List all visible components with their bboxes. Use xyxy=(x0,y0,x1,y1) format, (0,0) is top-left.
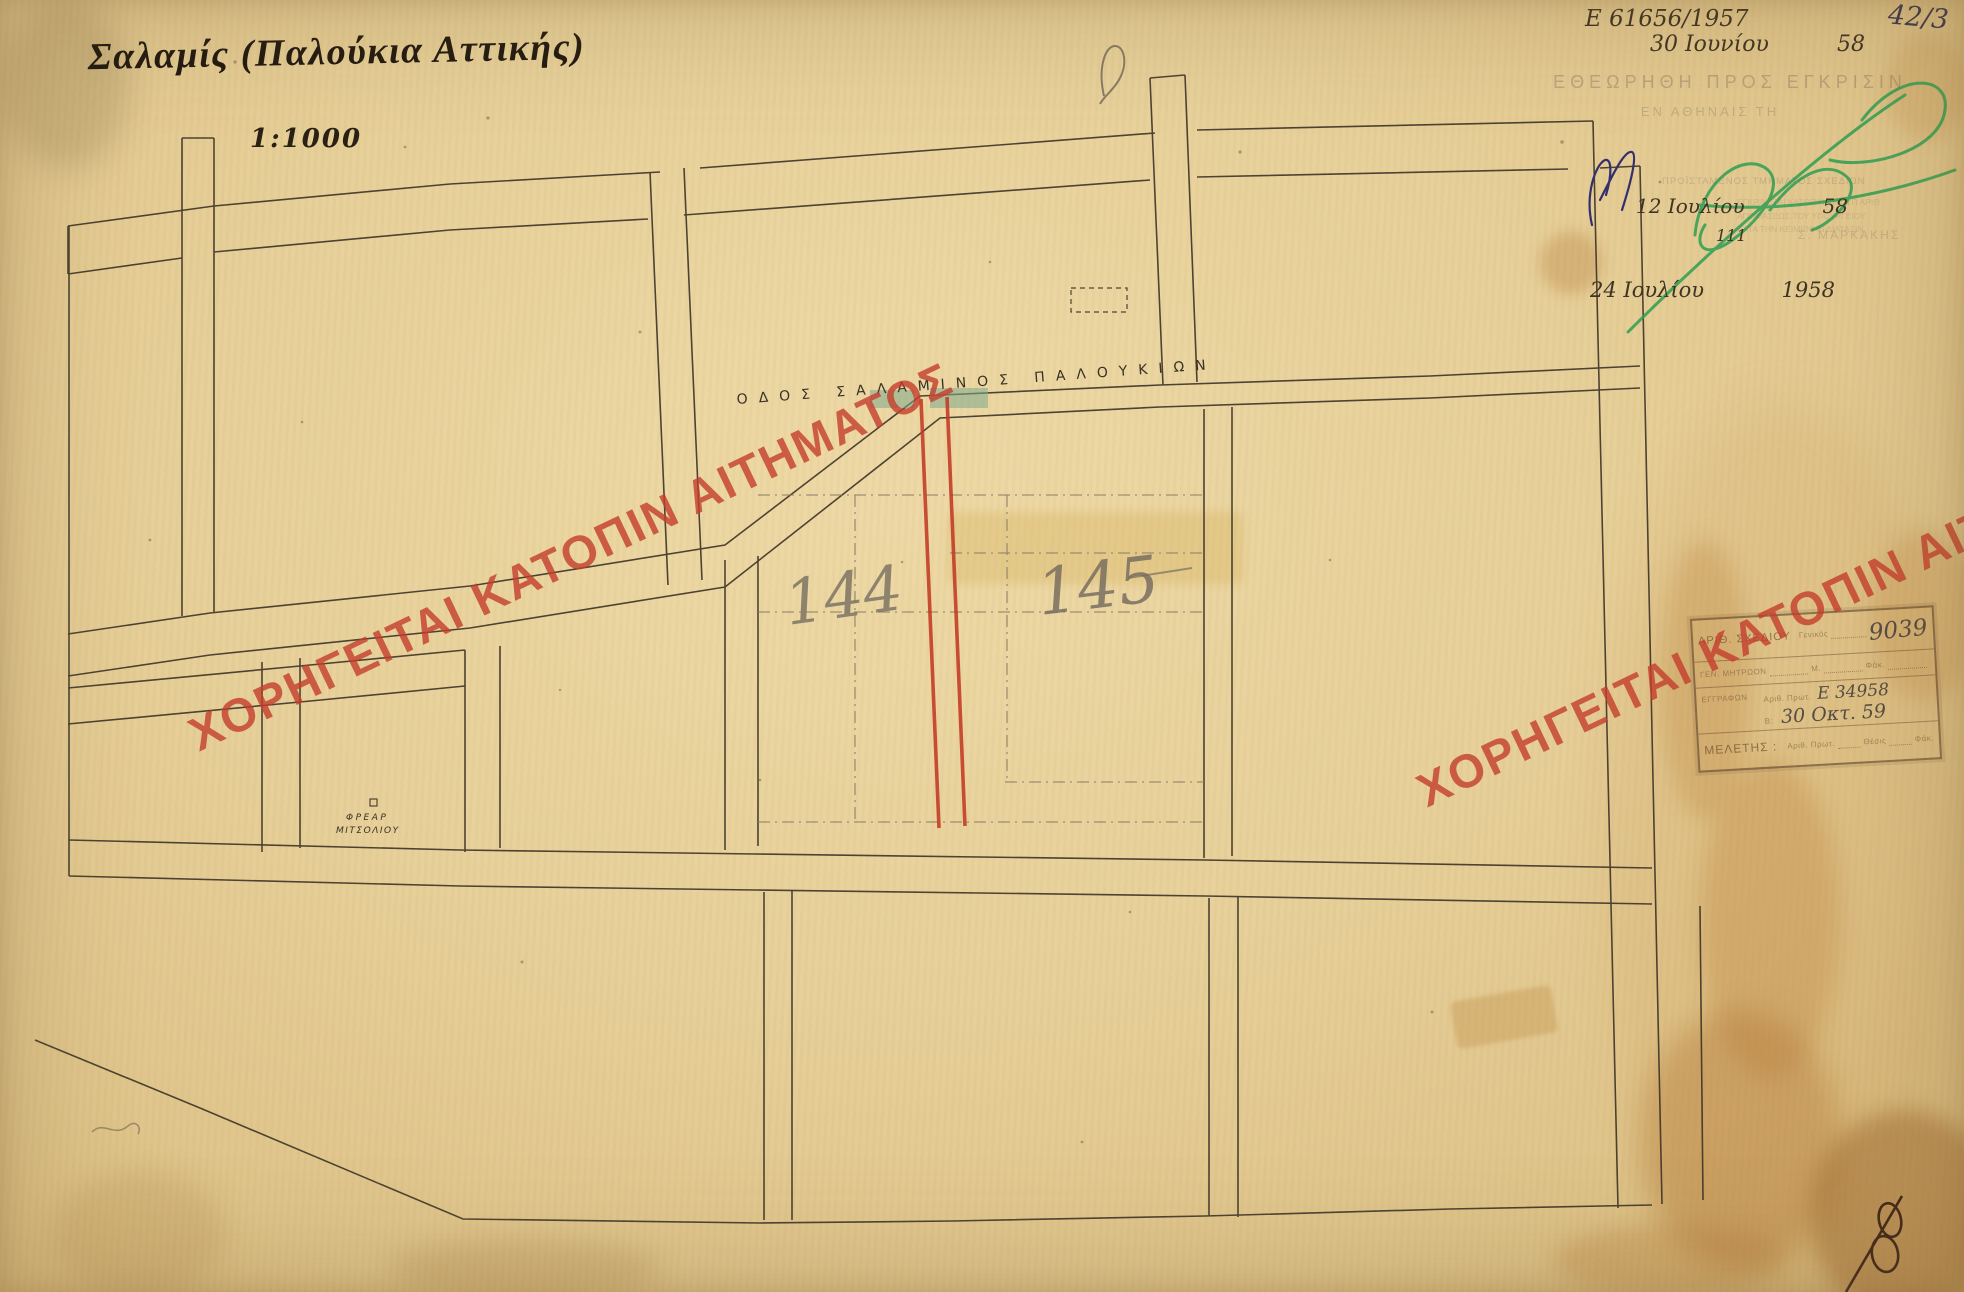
well-label-line2: ΜΙΤΣΟΛΙΟΥ xyxy=(336,826,400,836)
paper-specks xyxy=(149,60,1662,1143)
street-lines xyxy=(35,75,1703,1223)
pencil-squiggle-bottom-left xyxy=(92,1123,139,1134)
dotted-line xyxy=(1831,626,1867,639)
pencil-squiggle-top xyxy=(1100,46,1124,104)
position-label: Θέσις xyxy=(1863,736,1886,746)
protocol-label: Αριθ. Πρωτ. xyxy=(1763,692,1811,704)
b-label: Β: xyxy=(1764,716,1773,725)
faint-note-block: ΕΓΚΡΙΝΕΤΑΙ ΚΑΤΟΠΙΝ ΤΗΣ ΥΠ ΑΡΙΘ. ΑΠΟΦΑΣΕΩ… xyxy=(1737,196,1882,237)
block-number-144: 144 xyxy=(780,551,907,640)
file-number: Ε 61656/1957 xyxy=(1585,6,1749,32)
dotted-line xyxy=(1824,660,1863,673)
faint-official-title: ΠΡΟΪΣΤΑΜΕΝΟΣ ΤΜΗΜΑΤΟΣ ΣΧΕΔΙΩΝ xyxy=(1662,176,1866,187)
protocol-label-2: Αριθ. Πρωτ. xyxy=(1787,739,1835,751)
m-label: Μ. xyxy=(1811,664,1821,674)
approval-stamp-line2: ΕΝ ΑΘΗΝΑΙΣ ΤΗ xyxy=(1545,104,1875,119)
date-annotation-3: 24 Ιουλίου 1958 xyxy=(1590,278,1835,302)
blue-initials xyxy=(1590,152,1634,225)
stamp-date-value: 30 Οκτ. 59 xyxy=(1780,700,1886,728)
documents-label: ΕΓΓΡΑΦΩΝ xyxy=(1701,692,1763,704)
date1-year: 58 xyxy=(1837,32,1865,57)
dotted-line xyxy=(1838,736,1861,748)
dashed-structure xyxy=(1071,288,1127,312)
map-scale: 1:1000 xyxy=(250,124,362,154)
date1-text: 30 Ιουνίου xyxy=(1650,32,1769,57)
signature-paraph xyxy=(1846,1196,1904,1292)
approval-stamp-line1: ΕΘΕΩΡΗΘΗ ΠΡΟΣ ΕΓΚΡΙΣΙΝ xyxy=(1520,72,1940,93)
fak-label: Φάκ. xyxy=(1866,660,1886,670)
drawing-no-value: 9039 xyxy=(1868,614,1929,645)
block-number-145: 145 xyxy=(1033,543,1163,631)
date3-year: 1958 xyxy=(1782,278,1835,302)
dotted-line xyxy=(1888,657,1927,670)
faint-note-line3: ΚΑΤΑ ΤΗΝ ΚΕΙΜΕΝΗΝ ΔΙΑΤΑΞΙΝ xyxy=(1737,223,1882,237)
date2-text: 12 Ιουλίου xyxy=(1636,194,1745,218)
faint-note-line2: ΑΠΟΦΑΣΕΩΣ ΤΟΥ ΥΠΟΥΡΓΕΙΟΥ xyxy=(1737,210,1882,224)
date-annotation-1: 30 Ιουνίου 58 xyxy=(1650,32,1865,57)
well-label-line1: ΦΡΕΑΡ xyxy=(346,813,388,823)
scanned-map-sheet: ΟΔΟΣ ΣΑΛΑΜΙΝΟΣ ΠΑΛΟΥΚΙΩΝ 144 145 ΦΡΕΑΡ Μ… xyxy=(0,0,1964,1292)
study-label: ΜΕΛΕΤΗΣ : xyxy=(1704,739,1778,757)
sheet-code: 42/3 xyxy=(1887,0,1950,36)
date3-text: 24 Ιουλίου xyxy=(1590,278,1704,302)
dotted-line xyxy=(1889,733,1912,745)
faint-note-line1: ΕΓΚΡΙΝΕΤΑΙ ΚΑΤΟΠΙΝ ΤΗΣ ΥΠ ΑΡΙΘ. xyxy=(1737,196,1882,210)
well-marker xyxy=(370,799,377,806)
dotted-line xyxy=(1769,663,1808,676)
fak2-label: Φάκ. xyxy=(1914,733,1934,743)
